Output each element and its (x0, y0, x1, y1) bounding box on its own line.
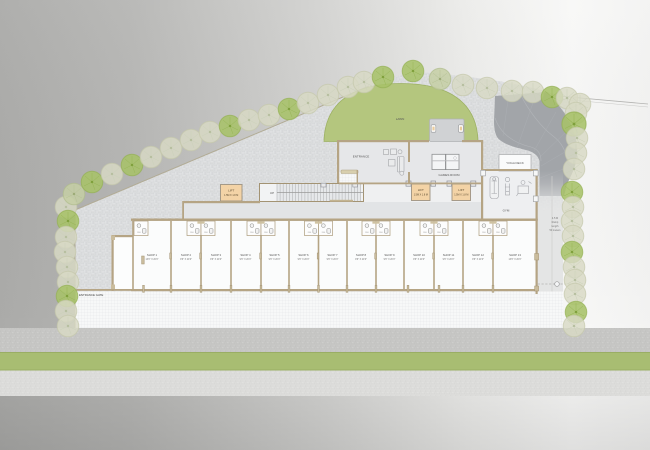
svg-text:ENTRANCE GATE: ENTRANCE GATE (79, 293, 103, 297)
svg-text:SHOP 1: SHOP 1 (147, 253, 158, 257)
svg-text:LIFT: LIFT (458, 188, 464, 192)
svg-text:SHOP 7: SHOP 7 (327, 253, 338, 257)
svg-text:LIFT: LIFT (228, 189, 234, 193)
svg-text:LIFT: LIFT (418, 188, 424, 192)
svg-text:SHOP 12: SHOP 12 (472, 253, 484, 257)
svg-text:SHOP 4: SHOP 4 (240, 253, 251, 257)
svg-text:SHOP 3: SHOP 3 (211, 253, 222, 257)
svg-text:LAWN: LAWN (396, 117, 405, 121)
svg-text:SHOP 6: SHOP 6 (298, 253, 309, 257)
svg-text:1.5M X 1.8 M: 1.5M X 1.8 M (414, 194, 428, 197)
svg-text:9’6" X 20’0": 9’6" X 20’0" (327, 259, 339, 261)
svg-text:9’6" X 20’0": 9’6" X 20’0" (413, 259, 425, 261)
svg-text:9’6" X 20’0": 9’6" X 20’0" (355, 259, 367, 261)
svg-text:50 meters: 50 meters (549, 229, 561, 232)
svg-text:SHOP 13: SHOP 13 (509, 253, 521, 257)
svg-text:ENTRANCE: ENTRANCE (353, 155, 370, 159)
svg-text:1.5M X 1.8 M: 1.5M X 1.8 M (224, 194, 238, 197)
svg-text:9’6" X 20’0": 9’6" X 20’0" (210, 259, 222, 261)
svg-text:13’6" X 20’0": 13’6" X 20’0" (508, 259, 521, 261)
svg-text:SHOP 8: SHOP 8 (356, 253, 367, 257)
svg-text:9’6" X 20’0": 9’6" X 20’0" (443, 259, 455, 261)
svg-text:4.5 M: 4.5 M (552, 217, 558, 220)
svg-text:SHOP 2: SHOP 2 (181, 253, 192, 257)
svg-text:SHOP 9: SHOP 9 (384, 253, 395, 257)
svg-text:SHOP 10: SHOP 10 (413, 253, 425, 257)
svg-text:YOGA DECK: YOGA DECK (506, 161, 524, 165)
svg-text:GAMES ROOM: GAMES ROOM (438, 173, 460, 177)
svg-text:GYM: GYM (503, 209, 510, 213)
svg-text:length: length (552, 225, 559, 228)
svg-text:UP: UP (270, 191, 274, 195)
svg-text:SHOP 5: SHOP 5 (269, 253, 280, 257)
svg-text:SHOP 11: SHOP 11 (443, 253, 455, 257)
svg-text:9’6" X 20’0": 9’6" X 20’0" (298, 259, 310, 261)
svg-text:9’6" X 20’0": 9’6" X 20’0" (269, 259, 281, 261)
svg-text:13’0" X 20’0": 13’0" X 20’0" (145, 259, 158, 261)
svg-text:Ramp: Ramp (552, 221, 559, 224)
svg-text:1.5M X 1.8 M: 1.5M X 1.8 M (454, 194, 468, 197)
svg-text:9’6" X 20’0": 9’6" X 20’0" (472, 259, 484, 261)
svg-text:9’6" X 20’0": 9’6" X 20’0" (384, 259, 396, 261)
svg-text:9’6" X 20’0": 9’6" X 20’0" (240, 259, 252, 261)
svg-text:9’6" X 20’0": 9’6" X 20’0" (180, 259, 192, 261)
